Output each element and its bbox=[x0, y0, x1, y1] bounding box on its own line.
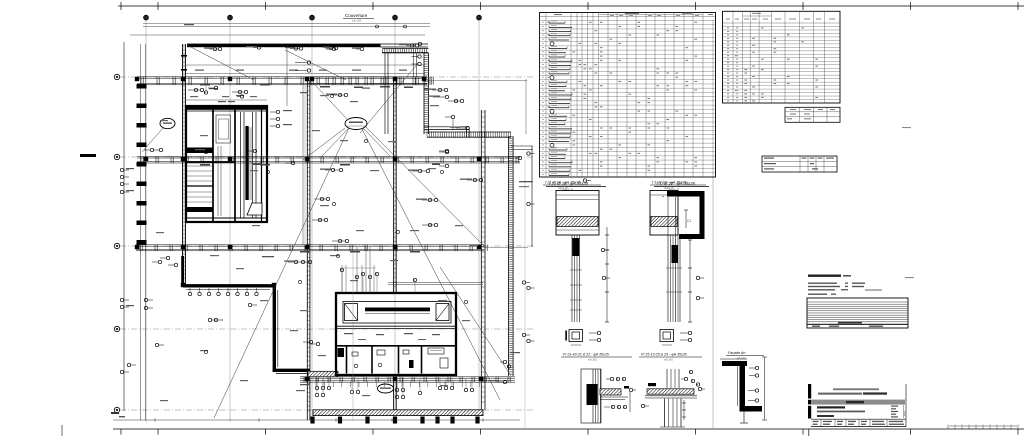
svg-text:ech 1/50: ech 1/50 bbox=[352, 20, 362, 23]
svg-text:ech 1/10: ech 1/10 bbox=[664, 360, 674, 362]
svg-text:Upcut LP: Upcut LP bbox=[558, 187, 568, 190]
svg-text:ech 1/10: ech 1/10 bbox=[588, 360, 598, 362]
svg-text:P/ 25-13-25 & 29 - φA 35x35: P/ 25-13-25 & 29 - φA 35x35 bbox=[641, 353, 687, 357]
svg-text:P/ 21-43-21 & 22 - φA 35x35: P/ 21-43-21 & 22 - φA 35x35 bbox=[563, 353, 609, 357]
svg-text:Upcut LP: Upcut LP bbox=[664, 187, 674, 190]
svg-text:Couverture: Couverture bbox=[345, 13, 368, 18]
svg-text:ℓ 1/ Ø 22 - φA 35x35: ℓ 1/ Ø 22 - φA 35x35 bbox=[651, 181, 687, 185]
svg-text:ℓ 21 Ø 16 - φA 35x35: ℓ 21 Ø 16 - φA 35x35 bbox=[544, 181, 581, 185]
svg-text:Façade Arr: Façade Arr bbox=[728, 351, 746, 355]
svg-text:C1: C1 bbox=[687, 219, 691, 223]
